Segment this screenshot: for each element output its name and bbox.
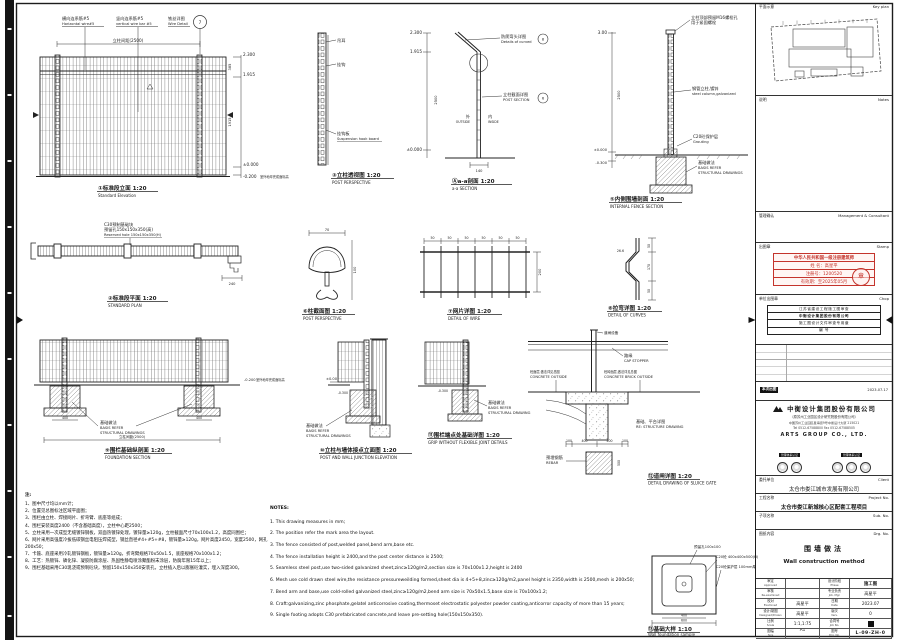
- notes-header: NOTES:: [270, 503, 636, 515]
- callout-label: 立柱截面详图: [503, 91, 528, 98]
- approval-label: 图幅Size: [756, 629, 786, 639]
- section-label-en: Key plan: [873, 4, 889, 10]
- section-label-cn: 单位出图章: [759, 296, 778, 302]
- dim-text: 400: [581, 439, 587, 443]
- issue-date: 2023.07.17: [867, 388, 888, 392]
- dim-text: 立柱间距(2500): [113, 37, 144, 44]
- note-item: 6、网片采用高强度冷拔低碳钢丝电阻压焊成型，钢丝直径#4+#5+#8，镀锌量≥1…: [25, 537, 271, 551]
- approval-value: 0: [850, 609, 892, 619]
- level-text: ±0.000: [243, 162, 259, 167]
- drawing-title-en: Wall construction method: [756, 559, 892, 565]
- callout-label: 横向连系筋#5: [62, 15, 89, 22]
- approval-value: 高星平: [850, 589, 892, 599]
- callout-label: Reserved hole 150x150x350(H): [104, 233, 162, 237]
- callout-label: BASIS REFER: [488, 406, 512, 410]
- dim-text: 26.6: [617, 249, 624, 253]
- section-label-en: Notes: [878, 97, 889, 103]
- callout-label: Details of curved: [501, 40, 532, 44]
- note-item: 5、立柱采用一次成型无缝镀锌钢板，双面热镀锌处理，镀锌量≥120g，立柱截面尺寸…: [25, 530, 271, 537]
- section-label-en: Chop: [879, 296, 889, 302]
- keyplan-sketch: [759, 11, 889, 91]
- side-label: 外: [466, 113, 471, 120]
- view-title: ⑤内侧围墙剖面 1:20: [610, 195, 664, 203]
- callout-label: 防爬弯头详图: [501, 33, 526, 40]
- detail-ref: 8: [542, 38, 545, 42]
- dim-text: 100: [566, 439, 572, 443]
- callout-label: 基础、平台详图: [636, 418, 665, 425]
- chop-line: 编 号: [768, 327, 880, 334]
- note-item: 9、围栏基础采用C30现浇或预制砼块，预留150x150x350安装孔，立柱插入…: [25, 565, 271, 572]
- section-label-cn: 平面示意: [759, 4, 774, 10]
- view-title: ⑩立柱与墙体接点立面图 1:20: [320, 446, 397, 454]
- dim-text: 400: [606, 439, 612, 443]
- level-text: ±0.000: [594, 148, 608, 152]
- view-end-footing: -0.300 基础做法 BASIS REFER STRUCTURAL DRAWI…: [418, 340, 531, 445]
- section-label-en: Drg. No.: [873, 531, 889, 537]
- note-item: 4. The fence installation height is 2400…: [270, 552, 636, 564]
- note-item: 8、工艺：热镀锌、磷化锌、凝胶防腐涂层、热固性静电喷涂聚酯粉末涂层，防腐年限15…: [25, 558, 271, 565]
- callout-label: 铁丝详图: [168, 15, 185, 22]
- section-label-cn: 出图章: [759, 244, 770, 250]
- callout-label: vertical wire bar #5: [116, 22, 152, 26]
- view-standard-elevation: 横向连系筋#5 Horizontal wire#5 竖向连系筋#5 vertic…: [33, 15, 289, 198]
- callout-label: Horizontal wire#5: [62, 22, 94, 26]
- approval-label: 设计/制图Designed/Drawn: [756, 609, 786, 619]
- drawing-sheet: 横向连系筋#5 Horizontal wire#5 竖向连系筋#5 vertic…: [0, 0, 900, 640]
- size-value: A1 09: [786, 629, 820, 639]
- view-post-perspective: 吊耳 挂钩 挂钩板 Suspension hook board ③立柱透视图 1…: [318, 33, 394, 185]
- note-item: 3. The fence consisted of post,welded pa…: [270, 540, 636, 552]
- callout-label: C20砼保护层 100mm厚: [716, 564, 756, 569]
- cert-badge-icon: [846, 462, 857, 473]
- callout-label: CONCRETE OUTSIDE: [530, 375, 568, 379]
- callout-label: Grouting: [693, 140, 709, 144]
- level-text: 2.300: [243, 52, 255, 57]
- dim-text: 240: [229, 282, 237, 286]
- section-label-cn: 工程名称: [759, 495, 774, 501]
- note-item: 1. This drawing measures in mm;: [270, 517, 636, 529]
- stamp-seal: 章: [852, 268, 870, 286]
- dim-text: 400: [681, 614, 687, 618]
- cert-badge-icon: [791, 462, 802, 473]
- keyplan-section: 平面示意 Key plan: [756, 3, 892, 96]
- cert-badge-icon: [832, 462, 843, 473]
- view-internal-fence-section: 3.00 ±0.000 -0.300 2500 立柱顶部预留M16螺栓孔 用于紧…: [594, 14, 748, 209]
- title-block: 平面示意 Key plan 说明 Notes 管理确认: [756, 3, 892, 637]
- drawing-title-cn: 围墙做法: [756, 544, 892, 554]
- view-wire-detail: 50 50 50 50 50 50 200 ⑦网片详图 1:20 DETAIL …: [420, 236, 542, 321]
- approval-label: 专业负责Job. Mgr.: [820, 589, 850, 599]
- view-title: Ⓐa-a剖面 1:20: [452, 177, 495, 185]
- cert-group: 管理体系认证: [832, 441, 871, 473]
- view-title: ②标准段平面 1:20: [108, 294, 157, 302]
- view-title-en: GRIP WITHOUT FLEXIBLE JOINT DETAILS: [428, 440, 508, 445]
- level-text: ±0.000: [407, 147, 423, 152]
- approval-value: 高星平: [786, 599, 820, 609]
- stamp-line: 中华人民共和国一级注册建筑师: [774, 254, 874, 261]
- callout-label: 挂钩: [337, 61, 345, 68]
- approval-label: 合同号Job No.: [820, 619, 850, 629]
- issue-label: 本次出图: [760, 387, 778, 393]
- section-label-cn: 说明: [759, 97, 767, 103]
- view-title-en: INTERNAL FENCE SECTION: [610, 204, 663, 209]
- approval-label: 审核Re-examined: [756, 589, 786, 599]
- note-item: 2. The position refer the mark area the …: [270, 528, 636, 540]
- approval-label: 日期Date: [820, 599, 850, 609]
- level-text: 1.915: [410, 49, 422, 54]
- dim-text: 200: [538, 268, 542, 276]
- dim-text: 170: [647, 264, 651, 270]
- view-footing-sample: 预留孔100x100 C20砼 400x400x500(H) C20砼保护层 1…: [647, 544, 759, 637]
- note-item: 8. Craft:galvanizing,zinc phosphate,gela…: [270, 599, 636, 611]
- callout-label: POST SECTION: [503, 98, 530, 102]
- callout-label: Suspension hook board: [337, 137, 379, 141]
- callout-label: 基础做法: [488, 399, 505, 406]
- view-post-wall-junction: ±0.00 -0.300 基础做法 BASIS REFER STRUCTURAL…: [306, 339, 412, 460]
- level-text: -0.200: [243, 174, 257, 179]
- callout-label: BASIS REFER: [100, 426, 124, 430]
- section-label-cn: 委托单位: [759, 477, 774, 483]
- approval-value: 高星平: [786, 609, 820, 619]
- section-label-en: Stamp: [877, 244, 889, 250]
- note-item: 5. Seamless steel post,use two-sided gal…: [270, 563, 636, 575]
- approval-label: 图号Drg. No.: [820, 629, 850, 639]
- view-title: ⑨围栏基础纵剖面 1:20: [105, 446, 165, 454]
- level-text: -0.300: [338, 391, 348, 395]
- notes-header: 注:: [25, 492, 271, 499]
- cert-badge-icon: [860, 462, 871, 473]
- view-title: ①标准段立面 1:20: [98, 184, 147, 192]
- section-label-en: Sub. No.: [873, 513, 889, 519]
- section-label-en: Management & Consultant: [838, 213, 889, 219]
- callout-label: 竖向连系筋#5: [116, 15, 143, 22]
- notes-chinese: 注: 1、图中尺寸均以mm计； 2、位置见总图标注区域平面图； 3、围栏由立柱、…: [25, 492, 271, 634]
- callout-label: STRUCTURAL DRAWING: [488, 411, 531, 415]
- company-former-name: （原苏州工业园区设计研究院股份有限公司）: [756, 414, 892, 419]
- review-chop: 江苏省建设工程施工图审查 中衡设计集团股份有限公司 施工图设计文件审查专用章 编…: [767, 305, 881, 335]
- view-title: ⑪围栏端点处基础详图 1:20: [428, 431, 500, 439]
- callout-label: 基础做法: [698, 159, 715, 166]
- stamp-section: 出图章 Stamp 中华人民共和国一级注册建筑师 姓 名：高星平 注册号：120…: [756, 243, 892, 295]
- side-label: INSIDE: [488, 120, 499, 124]
- section-label-en: Client: [878, 477, 889, 483]
- cert-group: 管理体系认证: [777, 441, 802, 473]
- view-title-en: POST AND WALL JUNCTION ELEVATION: [320, 455, 397, 460]
- view-title-en: POST PERSPECTIVE: [332, 180, 371, 185]
- callout-label: STRUCTURAL DRAWINGS: [306, 434, 351, 438]
- dim-text: 100: [353, 266, 357, 274]
- cert-label: 管理体系认证: [779, 453, 800, 457]
- section-label-cn: 子项名称: [759, 513, 774, 519]
- dim-text: 140: [476, 169, 484, 173]
- view-title: ⑫道闸详图 1:20: [648, 472, 692, 480]
- callout-label: 道闸设备: [604, 330, 619, 335]
- cert-badge-icon: [777, 462, 788, 473]
- note-item: 2、位置见总图标注区域平面图；: [25, 508, 271, 515]
- project-name: 太仓市娄江新城核心区配套工程项目: [756, 503, 892, 511]
- company-name-en: ARTS GROUP CO., LTD.: [756, 432, 892, 438]
- approval-value: 2023.07: [850, 599, 892, 609]
- note-item: 7. Bend arm and base,use cold-rolled gal…: [270, 587, 636, 599]
- view-title-en: DETAIL OF CURVES: [608, 313, 646, 318]
- dim-text: 50: [515, 236, 519, 240]
- view-title-en: Wall foundation sample: [648, 632, 696, 637]
- view-title-en: DETAIL OF WIRE: [448, 316, 481, 321]
- callout-label: STRUCTURAL DRAWINGS: [698, 171, 743, 175]
- binding-strip: [5, 0, 14, 640]
- client-name: 太仓市娄江城市发展有限公司: [756, 485, 892, 493]
- side-label: 内: [488, 113, 492, 120]
- dim-text: 100: [622, 439, 628, 443]
- callout-label: 钢管立柱,镀锌: [692, 85, 719, 92]
- level-note: 室外地坪完成面标高: [256, 377, 285, 382]
- approval-label: 设计阶段Phase: [820, 579, 850, 589]
- callout-label: 预埋钢筋: [546, 454, 563, 461]
- view-title-en: a-a SECTION: [452, 186, 477, 191]
- drawing-number: L-09-ZH-0: [850, 629, 892, 639]
- view-foundation-section: -0.200 室外地坪完成面标高 基础做法 BASIS REFER STRUCT…: [34, 338, 285, 460]
- approval-label: 版次Vers.: [820, 609, 850, 619]
- callout-label: 预留孔100x100: [694, 544, 721, 549]
- dim-text: 600: [681, 619, 687, 623]
- level-note: 室外地坪完成面标高: [260, 174, 289, 179]
- callout-label: 挂钩板: [337, 130, 350, 137]
- chop-section: 单位出图章 Chop 江苏省建设工程施工图审查 中衡设计集团股份有限公司 施工图…: [756, 295, 892, 345]
- company-name: 中衡设计集团股份有限公司: [787, 404, 876, 413]
- approval-value: [786, 579, 820, 589]
- callout-label: 用于紧固螺栓: [691, 19, 717, 26]
- level-text: 2.300: [410, 30, 422, 35]
- dim-text: 2500: [617, 90, 621, 100]
- dim-text: 400: [62, 416, 68, 420]
- callout-label: 基础做法: [306, 422, 323, 429]
- dim-text: 50: [498, 236, 502, 240]
- company-phone: Tel 0512-67588800 Fax 0512-67588505: [756, 426, 892, 430]
- notes-section: 说明 Notes: [756, 96, 892, 212]
- management-section: 管理确认 Management & Consultant: [756, 212, 892, 243]
- note-item: 3、围栏由立柱、焊接网片、折弯臂、底座等组成；: [25, 515, 271, 522]
- view-post-section: 70 100 ⑥柱截面图 1:20 POST PERSPECTIVE: [302, 228, 357, 321]
- approval-label: 校对Examined: [756, 599, 786, 609]
- callout-label: BASIS REFER: [306, 429, 330, 433]
- approval-value: [786, 589, 820, 599]
- dim-text: 500: [617, 460, 621, 466]
- note-item: 4、围栏安装高度2400（不含基础高度），立柱中心距2500；: [25, 523, 271, 530]
- view-sluice-gate: 道闸设备 路缘 CAP STOPPER 砼面层,做法详见总图 CONCRETE …: [528, 330, 717, 486]
- view-standard-plan: C30预制基础块 预留孔150x150x350(高) Reserved hole…: [31, 221, 242, 308]
- chop-line: 施工图设计文件审查专用章: [768, 319, 880, 326]
- scale-value: 1:1,1:75: [786, 619, 820, 629]
- approval-label: 比例Scale: [756, 619, 786, 629]
- project-section: 工程名称 Project No. 太仓市娄江新城核心区配套工程项目: [756, 494, 892, 512]
- view-title-en: POST PERSPECTIVE: [303, 316, 342, 321]
- level-text: -0.300: [438, 389, 448, 393]
- level-text: ±0.00: [326, 377, 338, 381]
- level-text: 1.915: [243, 72, 255, 77]
- view-aa-section: 2.300 1.915 ±0.000 2500 防爬弯头详图 Details o…: [407, 30, 549, 191]
- view-title-en: Standard Elevation: [98, 193, 137, 198]
- view-title: ⑧拉弯详图 1:20: [608, 304, 651, 312]
- dim-text: 立柱间距(2500): [119, 434, 146, 439]
- dim-text: 50: [647, 244, 651, 248]
- company-logo-icon: [772, 404, 784, 413]
- view-title: ⑦网片详图 1:20: [448, 307, 491, 315]
- detail-ref: 6: [542, 97, 545, 101]
- view-title-en: DETAIL DRAWING OF SLUICE GATE: [648, 481, 717, 486]
- approval-value: 施工图: [850, 579, 892, 589]
- dim-text: 1915: [228, 117, 232, 126]
- note-item: 7、卡箍、底座采用冷轧镀锌钢板，镀锌量≥120g，折弯臂规格70x50x1.5，…: [25, 551, 271, 558]
- approval-label: 审定Approved: [756, 579, 786, 589]
- dim-text: 50: [481, 236, 485, 240]
- view-title-en: FOUNDATION SECTION: [105, 455, 150, 460]
- callout-label: steel column,galvanized: [692, 92, 736, 96]
- callout-label: C20砼保护层: [693, 133, 718, 140]
- section-label-cn: 管理确认: [759, 213, 774, 219]
- callout-label: C20砼 400x400x500(H): [716, 554, 759, 559]
- dim-text: 50: [430, 236, 434, 240]
- level-text: -0.300: [595, 161, 607, 165]
- client-section: 委托单位 Client 太仓市娄江城市发展有限公司: [756, 476, 892, 494]
- callout-label: CONCRETE BRICK OUTSIDE: [604, 375, 654, 379]
- view-detail-of-curves: 26.6 50 170 50 ⑧拉弯详图 1:20 DETAIL OF CURV…: [607, 238, 662, 318]
- contract-seal-mark: [868, 621, 874, 627]
- section-label-en: Project No.: [868, 495, 889, 501]
- blank-revision-grid: [756, 345, 892, 382]
- callout-label: 路缘: [624, 352, 633, 359]
- callout-label: 砼砖面层,做法详见总图: [604, 369, 637, 374]
- callout-label: BASIS REFER: [698, 166, 722, 170]
- callout-label: 砼面层,做法详见总图: [530, 369, 560, 374]
- level-text: -0.200: [244, 378, 256, 382]
- dim-text: 385: [228, 64, 232, 71]
- callout-label: CAP STOPPER: [624, 359, 649, 363]
- side-label: OUTSIDE: [456, 120, 470, 124]
- dim-text: 2500: [434, 95, 438, 105]
- view-title: ③立柱透视图 1:20: [332, 171, 381, 179]
- dim-text: 70: [325, 228, 330, 232]
- callout-label: Wire Detail: [168, 22, 188, 26]
- drawing-title-section: 图纸内容 Drg. No. 围墙做法 Wall construction met…: [756, 530, 892, 579]
- detail-ref: 7: [199, 20, 202, 25]
- callout-label: 预留孔150x150x350(高): [104, 226, 153, 233]
- company-section: 中衡设计集团股份有限公司 （原苏州工业园区设计研究院股份有限公司） 中国苏州工业…: [756, 401, 892, 476]
- architect-stamp: 中华人民共和国一级注册建筑师 姓 名：高星平 注册号：1200520 有效期：至…: [773, 253, 875, 286]
- view-title-en: STANDARD PLAN: [108, 303, 142, 308]
- dim-text: 50: [447, 236, 451, 240]
- chop-line: 中衡设计集团股份有限公司: [768, 312, 880, 319]
- notes-english: NOTES: 1. This drawing measures in mm; 2…: [270, 503, 636, 633]
- cert-label: 管理体系认证: [841, 453, 862, 457]
- callout-label: 基础做法: [100, 419, 117, 426]
- company-address: 中国苏州工业园区星海街9号中衡设计大厦 215021: [756, 420, 892, 425]
- section-label-cn: 图纸内容: [759, 531, 774, 537]
- callout-label: REBAR: [546, 461, 559, 465]
- note-item: 1、图中尺寸均以mm计；: [25, 501, 271, 508]
- subproject-section: 子项名称 Sub. No. L-室外景观 L-outdoor Landscape: [756, 512, 892, 530]
- issue-row: 本次出图 2023.07.17: [756, 382, 892, 401]
- callout-label: 吊耳: [337, 38, 345, 44]
- note-item: 6. Mesh use cold drawn steel wire,the re…: [270, 575, 636, 587]
- dim-text: 400: [196, 416, 202, 420]
- callout-label: RE: STRUCTURE DRAWING: [636, 425, 684, 429]
- contract-cell: [850, 619, 892, 629]
- dim-text: 50: [464, 236, 468, 240]
- approval-table: 审定Approved 设计阶段Phase 施工图 审核Re-examined 专…: [756, 579, 892, 639]
- dim-text: 50: [647, 289, 651, 293]
- note-item: 9. Single footing adopts C30 prefabricat…: [270, 610, 636, 622]
- level-text: 3.00: [598, 30, 608, 35]
- view-title: ⑥柱截面图 1:20: [303, 307, 346, 315]
